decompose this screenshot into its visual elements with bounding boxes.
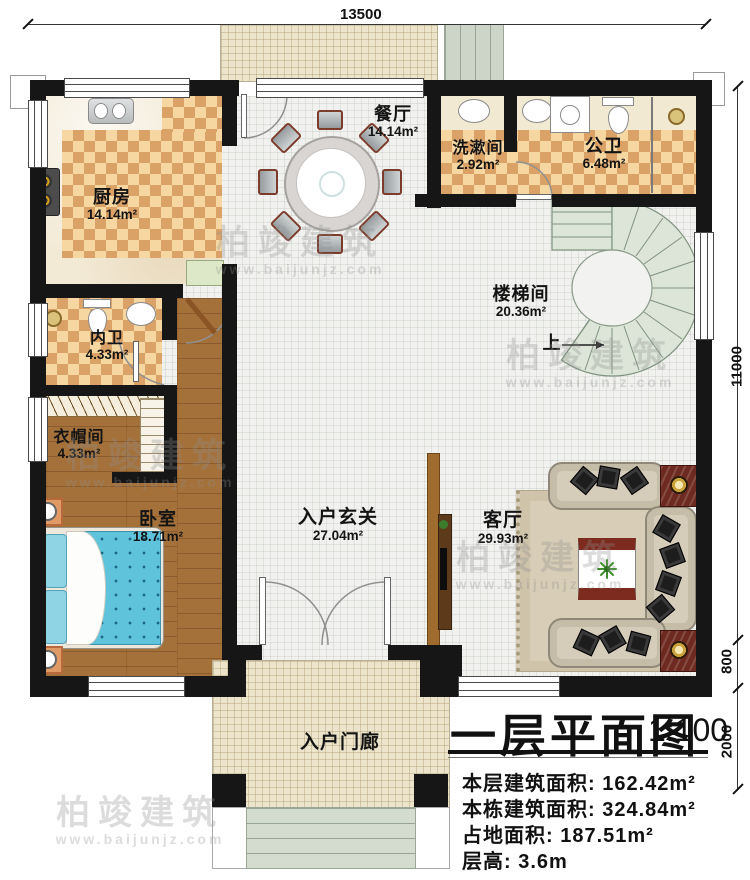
room-label-publicbath: 公卫 6.48m² [583,137,626,172]
up-text: 上 [543,334,562,354]
dim-right-total: 11000 [729,342,746,392]
entry-door-leaf-left [259,577,266,645]
wall [696,80,712,697]
room-area: 29.93m² [478,532,528,547]
wall [164,388,177,472]
wall [560,676,712,697]
room-area: 27.04m² [298,529,378,544]
stair-up-label: 上 [543,334,562,354]
porch-label: 入户门廊 [300,733,380,754]
wall [222,284,237,660]
room-area: 20.36m² [493,305,550,320]
stat-floor-height: 层高: 3.6m [462,845,568,874]
living-window [458,676,560,697]
room-name: 楼梯间 [493,285,550,305]
stat-footprint-area: 占地面积: 187.51m² [462,819,654,848]
innerbath-door-leaf [133,341,139,382]
room-area: 4.33m² [53,447,104,462]
floor-plan-canvas: 厨房 14.14m² 餐厅 14.14m² 洗漱间 2.92m² 公卫 6.48… [0,0,750,880]
room-name: 衣帽间 [53,429,104,447]
room-name: 厨房 [87,188,137,208]
wall [445,676,458,697]
entry-door-leaf-right [384,577,391,645]
stairhall-window [694,232,714,340]
wall [228,645,246,697]
wall [30,80,64,96]
room-label-foyer: 入户玄关 27.04m² [298,508,378,544]
room-label-dining: 餐厅 14.14m² [368,105,418,140]
wall [504,96,517,152]
plan-scale: 1:100 [648,712,728,749]
room-area: 18.71m² [133,530,183,545]
room-name: 卧室 [133,510,183,530]
room-area: 14.14m² [368,125,418,140]
kitchen-side-window [28,100,48,168]
room-name: 公卫 [583,137,626,157]
dim-line-right [737,86,738,790]
room-label-stairwell: 楼梯间 20.36m² [493,285,550,320]
room-label-washroom: 洗漱间 2.92m² [452,140,503,172]
room-name: 客厅 [478,511,528,532]
dim-line-top [27,24,706,25]
title-rule-thin [448,757,708,758]
innerbath-window [28,303,48,357]
wall [222,96,237,146]
wall [415,194,516,207]
porch-name: 入户门廊 [300,733,380,754]
dining-window [256,78,424,98]
room-label-cloakroom: 衣帽间 4.33m² [53,429,104,461]
wall [162,298,177,340]
dim-right-mid: 800 [719,642,736,682]
room-area: 2.92m² [452,158,503,173]
room-label-innerbath: 内卫 4.33m² [86,330,129,362]
room-name: 餐厅 [368,105,418,125]
terrace-door-leaf [241,94,247,138]
wall [552,194,696,207]
room-name: 洗漱间 [452,140,503,158]
wall [190,80,239,96]
kitchen-window [64,78,190,98]
room-area: 6.48m² [583,157,626,172]
dim-top-value: 13500 [340,6,382,23]
wall [112,472,177,483]
room-name: 入户玄关 [298,508,378,529]
stat-building-area: 本栋建筑面积: 324.84m² [462,793,696,822]
room-label-living: 客厅 29.93m² [478,511,528,547]
stat-floor-area: 本层建筑面积: 162.42m² [462,767,696,796]
room-area: 4.33m² [86,348,129,363]
wall [30,284,183,298]
room-area: 14.14m² [87,208,137,223]
room-name: 内卫 [86,330,129,348]
wall [427,96,441,208]
washroom-door-leaf [516,194,552,200]
room-label-kitchen: 厨房 14.14m² [87,188,137,223]
wall [30,385,177,396]
room-label-bedroom: 卧室 18.71m² [133,510,183,545]
cloakroom-window [28,397,48,462]
bedroom-window [88,676,185,697]
title-rule [448,750,708,754]
wall [424,80,712,96]
wall [30,676,88,697]
